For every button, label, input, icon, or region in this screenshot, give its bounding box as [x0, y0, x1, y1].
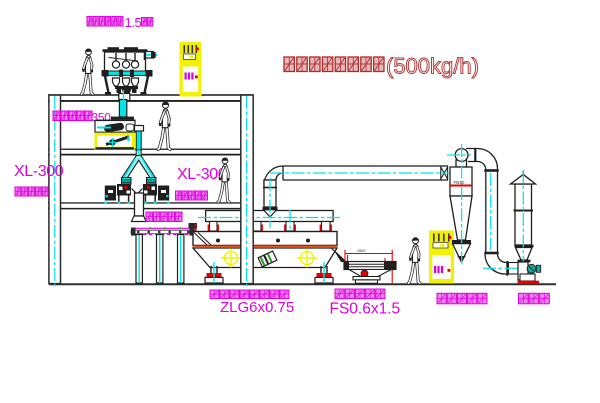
svg-text:FB10: FB10 — [454, 180, 465, 185]
svg-text:XL-300: XL-300 — [14, 163, 64, 180]
svg-text:1500: 1500 — [357, 249, 365, 253]
svg-text:XL-300: XL-300 — [177, 166, 227, 183]
svg-text:ZLG6x0.75: ZLG6x0.75 — [220, 299, 294, 316]
svg-text:FS0.6x1.5: FS0.6x1.5 — [330, 301, 401, 318]
svg-text:(500kg/h): (500kg/h) — [386, 54, 479, 79]
svg-text:1.5: 1.5 — [125, 15, 142, 30]
